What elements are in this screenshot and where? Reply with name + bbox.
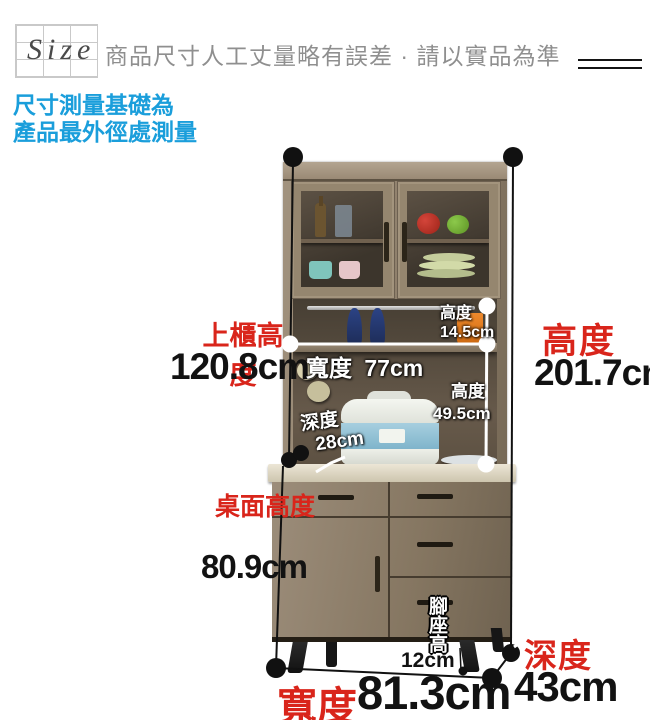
counter-top — [268, 464, 516, 482]
shelf-height-text: 高度 — [440, 304, 494, 323]
door-handle-left — [384, 222, 389, 262]
size-label: Size — [27, 33, 95, 67]
glass-door-left — [291, 181, 395, 299]
red-canister-icon — [417, 213, 440, 234]
open-height-label: 高度 49.5cm — [433, 381, 485, 425]
blue-goblet-icon — [347, 308, 362, 346]
product-dimension-page: Size 商品尺寸人工丈量略有誤差 · 請以實品為準 尺寸測量基礎為 產品最外徑… — [0, 0, 650, 720]
glass-door-right — [397, 181, 501, 299]
green-canister-icon — [447, 215, 469, 234]
teal-mug-icon — [309, 261, 332, 279]
desk-height-label: 桌面高度 — [215, 487, 315, 523]
plate-stack-icon — [417, 269, 475, 278]
shelf-height-label: 高度 14.5cm — [440, 304, 494, 342]
measurement-basis-line1: 尺寸測量基礎為 — [13, 92, 197, 119]
open-height-value: 49.5cm — [433, 403, 485, 425]
depth-value: 43cm — [514, 663, 617, 711]
measurement-basis-note: 尺寸測量基礎為 產品最外徑處測量 — [13, 92, 197, 146]
glass-right — [407, 191, 489, 287]
glass-left — [301, 191, 383, 287]
lower-door-handle — [375, 556, 380, 592]
inner-width-text: 寬度 — [306, 355, 352, 381]
desk-height-value: 80.9cm — [201, 548, 307, 586]
inner-width-value: 77cm — [364, 355, 423, 381]
pink-mug-icon — [339, 261, 360, 279]
glass-shelf-right — [407, 239, 489, 243]
open-height-text: 高度 — [433, 381, 485, 403]
foot-height-label: 腳座高 — [426, 596, 446, 653]
drawer-seam — [390, 576, 512, 578]
hanging-cup-icon — [307, 381, 330, 402]
bottle-icon — [315, 203, 326, 237]
drawer-handle — [417, 494, 453, 499]
cabinet-base-edge — [272, 637, 512, 642]
cabinet-divider — [388, 482, 390, 642]
door-handle-right — [402, 222, 407, 262]
width-label: 寬度 — [277, 674, 357, 720]
drawer-handle — [318, 495, 354, 500]
header-underline — [578, 59, 642, 69]
total-height-value: 201.7cm — [534, 352, 650, 394]
shelf-height-value: 14.5cm — [440, 323, 494, 342]
drawer-seam — [390, 516, 512, 518]
inner-depth-label: 深度 28cm — [299, 406, 365, 458]
upper-cabinet-height-value: 120.8cm — [170, 346, 292, 388]
jar-icon — [335, 205, 352, 237]
measurement-basis-line2: 產品最外徑處測量 — [13, 119, 197, 146]
cabinet-leg — [287, 642, 307, 673]
drawer-handle — [417, 542, 453, 547]
glass-shelf-left — [301, 239, 383, 243]
header-disclaimer: 商品尺寸人工丈量略有誤差 · 請以實品為準 — [105, 37, 560, 71]
width-value: 81.3cm — [357, 665, 510, 720]
cabinet-leg — [326, 642, 337, 667]
bottle-neck-icon — [319, 196, 323, 206]
inner-width-label: 寬度 77cm — [306, 349, 423, 383]
cabinet-leg — [491, 628, 505, 652]
upper-cabinet-top-panel — [283, 162, 507, 181]
blue-goblet-icon — [370, 308, 385, 346]
